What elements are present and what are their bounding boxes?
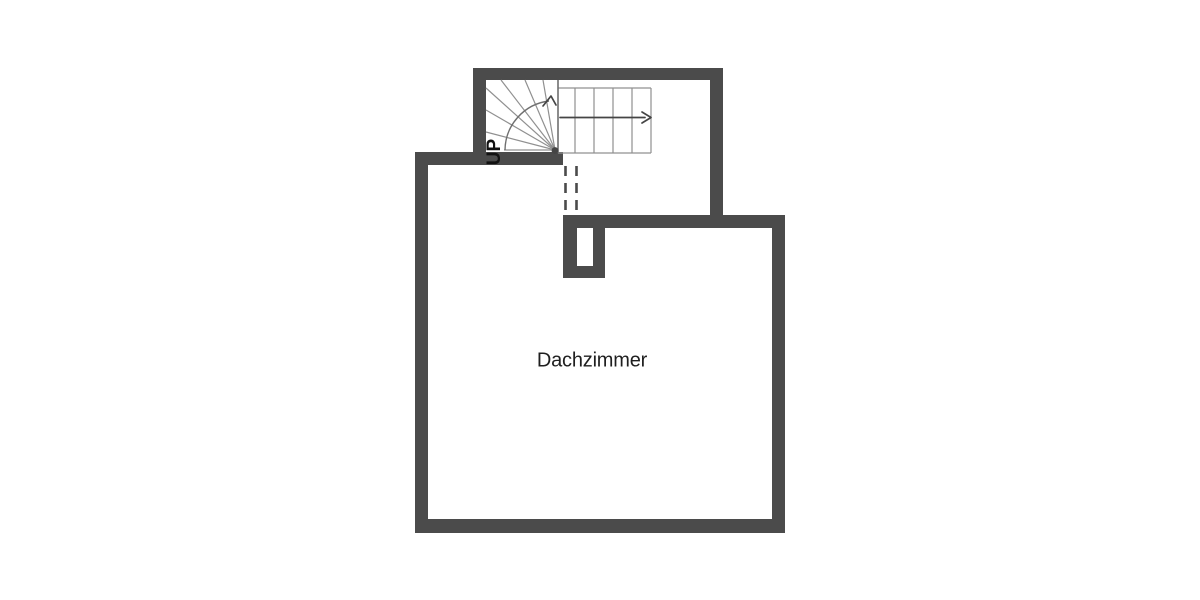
room-label-dachzimmer: Dachzimmer xyxy=(537,350,647,373)
staircase xyxy=(486,80,651,154)
floorplan-drawing xyxy=(0,0,1200,600)
stair-opening-dashed xyxy=(566,166,577,214)
floorplan-canvas: UP Dachzimmer xyxy=(0,0,1200,600)
room-left-wall xyxy=(415,152,428,533)
chimney-shaft xyxy=(563,215,605,278)
winder-tread xyxy=(501,80,555,150)
chimney-flue xyxy=(577,228,593,266)
stairwell-right-wall xyxy=(710,68,723,228)
winder-tread xyxy=(525,80,555,150)
stairwell-top-wall xyxy=(473,68,723,80)
walls xyxy=(415,68,785,533)
room-bottom-wall xyxy=(415,519,785,533)
stairs-up-label: UP xyxy=(484,139,506,165)
winder-tread xyxy=(543,80,555,150)
winder-center-dot xyxy=(552,147,559,154)
room-right-wall xyxy=(772,215,785,533)
